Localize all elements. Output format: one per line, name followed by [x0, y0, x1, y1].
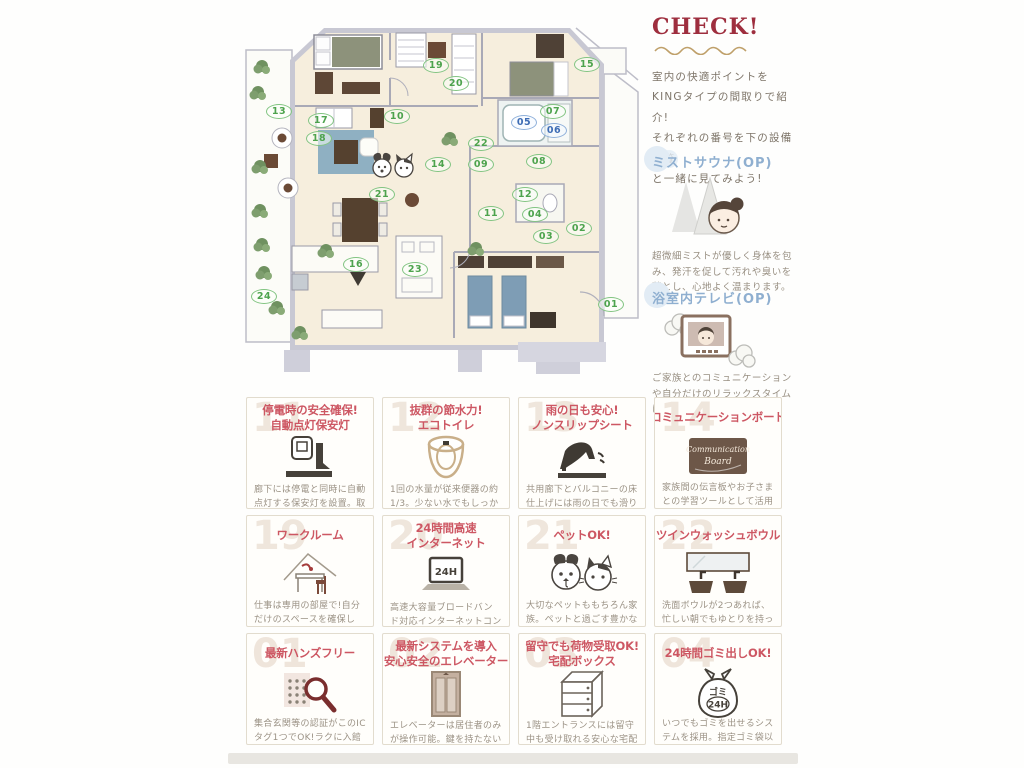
feature-grid: 11停電時の安全確保!自動点灯保安灯 廊下には停電と同時に自動点灯する保安灯を設…: [246, 397, 786, 745]
feature-title: ペットOK!: [526, 521, 638, 549]
handsfree-icon: [254, 667, 366, 717]
communication-board-icon: Communication Board: [662, 431, 774, 481]
feature-title: 最新ハンズフリー: [254, 639, 366, 667]
feature-title: 留守でも荷物受取OK!宅配ボックス: [526, 639, 638, 669]
feature-card-nonslip: 13雨の日も安心!ノンスリップシート 共用廊下とバルコニーの床仕上げには雨の日で…: [518, 397, 646, 509]
svg-text:Board: Board: [703, 457, 732, 467]
plan-marker-05: 05: [511, 115, 537, 130]
op-title: 浴室内テレビ(OP): [652, 288, 800, 307]
plan-marker-04: 04: [522, 207, 548, 222]
feature-description: いつでもゴミを出せるシステムを採用。指定ゴミ袋以外の袋もOKだから経済的!: [662, 718, 774, 745]
feature-description: 仕事は専用の部屋で!自分だけのスペースを確保して、作業の効率化を図ります。: [254, 600, 366, 627]
feature-description: エレベーターは居住者のみが操作可能。鍵を持たない不審者の侵入を防ぎます。: [390, 720, 502, 745]
feature-title: 抜群の節水力!エコトイレ: [390, 403, 502, 433]
delivery-box-icon: [526, 669, 638, 719]
garbage-icon: ゴミ 24H: [662, 667, 774, 717]
feature-title: 24時間ゴミ出しOK!: [662, 639, 774, 667]
internet-icon: 24H: [390, 551, 502, 601]
feature-card-delivery-box: 03留守でも荷物受取OK!宅配ボックス 1階エントランスには留守中も受け取れる安…: [518, 633, 646, 745]
svg-text:Communication: Communication: [686, 445, 750, 454]
feature-card-garbage: 0424時間ゴミ出しOK! ゴミ 24Hいつでもゴミを出せるシステムを採用。指定…: [654, 633, 782, 745]
plan-marker-13: 13: [266, 104, 292, 119]
plan-marker-19: 19: [423, 58, 449, 73]
plan-marker-layer: 0102030405060708091011121314151617181920…: [230, 20, 645, 392]
plan-marker-01: 01: [598, 297, 624, 312]
svg-text:ゴミ: ゴミ: [709, 686, 727, 698]
feature-card-handsfree: 01最新ハンズフリー 集合玄関等の認証がこのICタグ1つでOK!ラクに入館するこ…: [246, 633, 374, 745]
plan-marker-14: 14: [425, 157, 451, 172]
plan-marker-17: 17: [308, 113, 334, 128]
plan-marker-02: 02: [566, 221, 592, 236]
floor-plan: 0102030405060708091011121314151617181920…: [230, 20, 645, 392]
twin-bowl-icon: [662, 549, 774, 599]
plan-marker-06: 06: [541, 123, 567, 138]
mist-sauna-icon: [652, 171, 800, 249]
op-feature-mist-sauna: ミストサウナ(OP) 超微細ミストが優しく身体を包み、発汗を促して汚れや臭いを落…: [652, 152, 800, 296]
feature-title: コミュニケーションボード: [662, 403, 774, 431]
feature-title: 最新システムを導入安心安全のエレベーター: [390, 639, 502, 669]
feature-description: 1回の水量が従来便器の約1/3。少ない水でもしっかり汚れを流し水道代もお得です。: [390, 484, 502, 509]
plan-marker-07: 07: [540, 104, 566, 119]
feature-card-twin-bowl: 22ツインウォッシュボウル 洗面ボウルが2つあれば、忙しい朝でもゆとりを持って身…: [654, 515, 782, 627]
feature-title: 停電時の安全確保!自動点灯保安灯: [254, 403, 366, 433]
pets-icon: [526, 549, 638, 599]
plan-marker-23: 23: [402, 262, 428, 277]
feature-title: ツインウォッシュボウル: [662, 521, 774, 549]
plan-marker-16: 16: [343, 257, 369, 272]
feature-description: 洗面ボウルが2つあれば、忙しい朝でもゆとりを持って身支度ができます。※KINGタ…: [662, 600, 774, 627]
plan-marker-10: 10: [384, 109, 410, 124]
feature-card-internet: 2024時間高速インターネット 24H 高速大容量ブロードバンド対応インターネッ…: [382, 515, 510, 627]
eco-toilet-icon: [390, 433, 502, 483]
plan-marker-11: 11: [478, 206, 504, 221]
bath-tv-icon: [652, 307, 800, 371]
check-intro-line: KINGタイプの間取りで紹介!: [652, 87, 802, 128]
check-title: CHECK!: [652, 14, 802, 40]
footer-bar: [228, 753, 798, 764]
plan-marker-20: 20: [443, 76, 469, 91]
feature-card-emergency-light: 11停電時の安全確保!自動点灯保安灯 廊下には停電と同時に自動点灯する保安灯を設…: [246, 397, 374, 509]
plan-marker-03: 03: [533, 229, 559, 244]
op-title: ミストサウナ(OP): [652, 152, 800, 171]
flyer-page: 0102030405060708091011121314151617181920…: [0, 0, 1024, 768]
plan-marker-18: 18: [306, 131, 332, 146]
svg-text:24H: 24H: [708, 701, 728, 711]
elevator-icon: [390, 669, 502, 719]
plan-marker-09: 09: [468, 157, 494, 172]
plan-marker-15: 15: [574, 57, 600, 72]
feature-description: 家族間の伝言板やお子さまとの学習ツールとして活用できるボードです。: [662, 482, 774, 509]
plan-marker-08: 08: [526, 154, 552, 169]
feature-description: 大切なペットももちろん家族。ペットと過ごす豊かな生活をエンジョイ!: [526, 600, 638, 627]
feature-card-eco-toilet: 12抜群の節水力!エコトイレ 1回の水量が従来便器の約1/3。少ない水でもしっか…: [382, 397, 510, 509]
plan-marker-12: 12: [512, 187, 538, 202]
feature-title: 雨の日も安心!ノンスリップシート: [526, 403, 638, 433]
svg-text:24H: 24H: [435, 567, 457, 578]
emergency-light-icon: [254, 433, 366, 483]
feature-card-pets: 21ペットOK! 大切なペットももちろん家族。ペットと過ごす豊かな生活をエンジョ…: [518, 515, 646, 627]
feature-card-elevator: 02最新システムを導入安心安全のエレベーター エレベーターは居住者のみが操作可能…: [382, 633, 510, 745]
feature-card-communication-board: 14コミュニケーションボード Communication Board 家族間の伝…: [654, 397, 782, 509]
feature-title: ワークルーム: [254, 521, 366, 549]
squiggle-underline: [652, 46, 762, 55]
feature-title: 24時間高速インターネット: [390, 521, 502, 551]
feature-description: 集合玄関等の認証がこのICタグ1つでOK!ラクに入館することが出来ます。: [254, 718, 366, 745]
feature-description: 高速大容量ブロードバンド対応インターネットコンセントをリビングとワークルームに配…: [390, 602, 502, 627]
feature-card-workroom: 19ワークルーム 仕事は専用の部屋で!自分だけのスペースを確保して、作業の効率化…: [246, 515, 374, 627]
plan-marker-22: 22: [468, 136, 494, 151]
plan-marker-21: 21: [369, 187, 395, 202]
feature-description: 1階エントランスには留守中も受け取れる安心な宅配ボックスを設置。: [526, 720, 638, 745]
feature-description: 共用廊下とバルコニーの床仕上げには雨の日でも滑りにくいノンスリップシートを採用。: [526, 484, 638, 509]
feature-description: 廊下には停電と同時に自動点灯する保安灯を設置。取り外せば懐中電灯にもなります。: [254, 484, 366, 509]
check-intro-line: 室内の快適ポイントを: [652, 67, 802, 87]
nonslip-icon: [526, 433, 638, 483]
workroom-icon: [254, 549, 366, 599]
plan-marker-24: 24: [251, 289, 277, 304]
